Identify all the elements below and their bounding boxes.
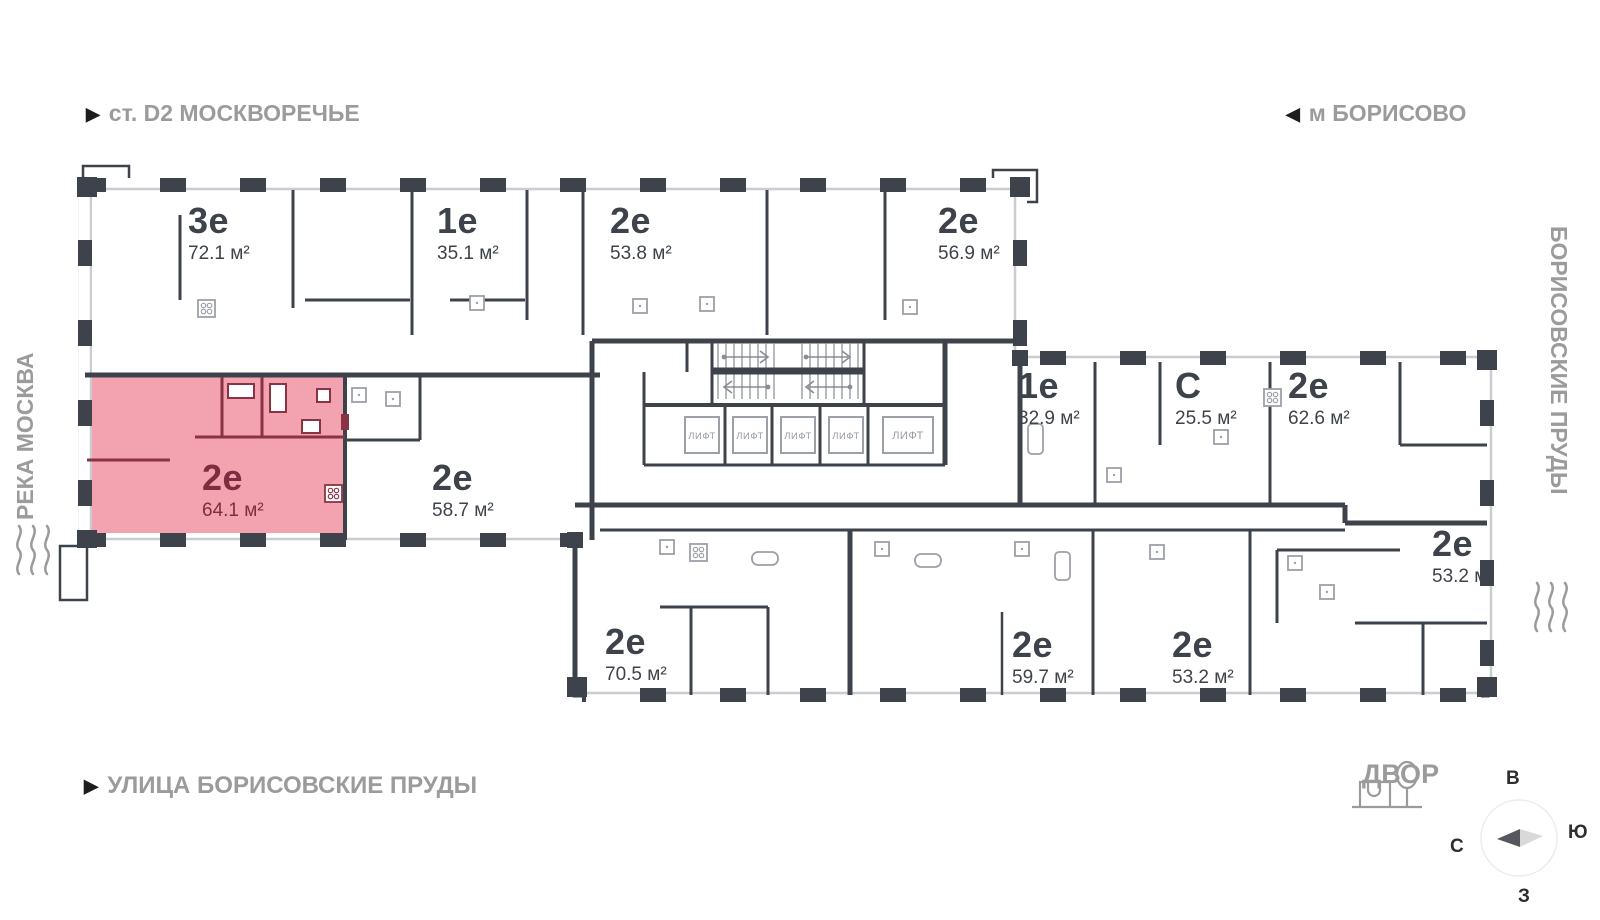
unit-area: 25.5 м² <box>1175 409 1237 428</box>
ponds-waves-icon <box>1535 583 1566 631</box>
river-label: РЕКА МОСКВА <box>12 353 39 521</box>
unit-type: 2е <box>1172 627 1234 663</box>
unit-label[interactable]: 2е 53.2 м² <box>1172 627 1234 687</box>
unit-area: 53.2 м² <box>1432 567 1494 586</box>
unit-label-selected[interactable]: 2е 64.1 м² <box>202 460 264 520</box>
lift-label: ЛИФТ <box>829 424 863 448</box>
unit-label[interactable]: 2е 53.2 м² <box>1432 526 1494 586</box>
unit-area: 53.8 м² <box>610 244 672 263</box>
unit-type: 2е <box>610 203 672 239</box>
lift-label: ЛИФТ <box>685 424 719 448</box>
unit-label[interactable]: 2е 53.8 м² <box>610 203 672 263</box>
unit-type: 3е <box>188 203 250 239</box>
unit-label[interactable]: 3е 72.1 м² <box>188 203 250 263</box>
direction-left-icon: ◀ <box>1286 104 1300 124</box>
compass-west: З <box>1518 886 1530 908</box>
unit-label[interactable]: 2е 59.7 м² <box>1012 627 1074 687</box>
unit-type: 1е <box>437 203 499 239</box>
compass-east: В <box>1506 768 1520 790</box>
unit-area: 59.7 м² <box>1012 668 1074 687</box>
unit-label[interactable]: 1е 35.1 м² <box>437 203 499 263</box>
lift-label: ЛИФТ <box>781 424 815 448</box>
unit-type: 2е <box>605 624 667 660</box>
ponds-label: БОРИСОВСКИЕ ПРУДЫ <box>1545 226 1572 494</box>
yard-label: ДВОР <box>1352 760 1439 790</box>
compass <box>1481 800 1557 876</box>
unit-area: 72.1 м² <box>188 244 250 263</box>
direction-right-icon: ▶ <box>86 104 100 124</box>
unit-type: 2е <box>432 460 494 496</box>
station-label: ▶ст. D2 МОСКВОРЕЧЬЕ <box>86 100 360 127</box>
unit-type: 2е <box>1012 627 1074 663</box>
river-waves-icon <box>17 526 48 574</box>
unit-label[interactable]: 2е 58.7 м² <box>432 460 494 520</box>
metro-label: ◀м БОРИСОВО <box>1286 100 1466 127</box>
floor-plan-page: ▶ст. D2 МОСКВОРЕЧЬЕ ◀м БОРИСОВО ▶УЛИЦА Б… <box>0 0 1600 920</box>
unit-type: 2е <box>1432 526 1494 562</box>
unit-type: 2е <box>202 460 264 496</box>
unit-type: 2е <box>1288 368 1350 404</box>
compass-north: С <box>1450 836 1464 858</box>
lift-label: ЛИФТ <box>883 424 933 448</box>
unit-area: 70.5 м² <box>605 665 667 684</box>
unit-area: 58.7 м² <box>432 501 494 520</box>
unit-area: 64.1 м² <box>202 501 264 520</box>
unit-label[interactable]: 2е 62.6 м² <box>1288 368 1350 428</box>
unit-label[interactable]: 2е 70.5 м² <box>605 624 667 684</box>
unit-type: 2е <box>938 203 1000 239</box>
unit-area: 62.6 м² <box>1288 409 1350 428</box>
lift-label: ЛИФТ <box>733 424 767 448</box>
unit-label[interactable]: 1е 32.9 м² <box>1018 368 1080 428</box>
unit-area: 32.9 м² <box>1018 409 1080 428</box>
unit-type: 1е <box>1018 368 1080 404</box>
compass-south: Ю <box>1568 822 1588 844</box>
yard-icon <box>1352 760 1424 810</box>
direction-right-icon: ▶ <box>84 775 98 796</box>
unit-area: 53.2 м² <box>1172 668 1234 687</box>
unit-label[interactable]: С 25.5 м² <box>1175 368 1237 428</box>
unit-label[interactable]: 2е 56.9 м² <box>938 203 1000 263</box>
unit-area: 35.1 м² <box>437 244 499 263</box>
unit-area: 56.9 м² <box>938 244 1000 263</box>
street-label: ▶УЛИЦА БОРИСОВСКИЕ ПРУДЫ <box>84 772 477 800</box>
unit-type: С <box>1175 368 1237 404</box>
